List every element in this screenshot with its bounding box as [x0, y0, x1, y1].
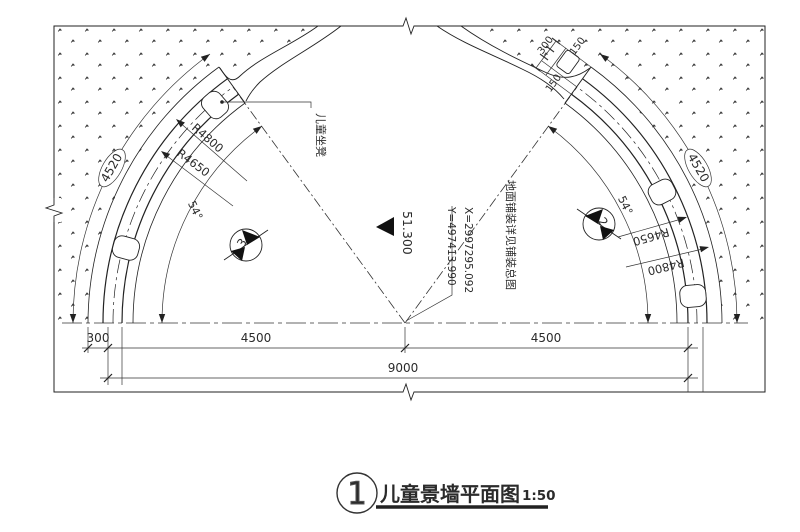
bench-label: 儿童坐凳: [314, 113, 328, 157]
drawing-title: 儿童景墙平面图: [379, 482, 520, 506]
bench-callout: 儿童坐凳: [220, 100, 328, 157]
angle-left-label: 54°: [185, 199, 205, 222]
paving-note: 地面铺装详见铺装总图: [504, 180, 518, 290]
radius-right-inner-label: R4650: [631, 225, 671, 249]
detail-number: 1: [347, 476, 367, 512]
elevation-value: 51.300: [400, 211, 415, 255]
arrowhead: [159, 314, 165, 323]
bench-leader-line: [222, 102, 311, 108]
border-break-mask-top: [396, 17, 418, 34]
dim-4500-left: 4500: [241, 331, 272, 345]
coordinate-callout: X=2997295.092 Y=497413.990: [406, 206, 474, 321]
bench-right-lower: [679, 284, 707, 308]
arrowhead: [645, 314, 651, 323]
radius-right-outer-label: R4800: [646, 256, 686, 279]
linear-dimension-labels: 300 4500 4500 9000: [87, 331, 562, 375]
elevation-marker: 51.300: [376, 211, 415, 255]
stipple-left-region: [54, 26, 318, 323]
section-symbol-left: 3: [224, 229, 268, 261]
coordinate-x-value: X=2997295.092: [462, 207, 474, 293]
linear-dimensions: [82, 327, 703, 392]
arrowhead: [699, 244, 709, 252]
angle-right-label: 54°: [615, 194, 635, 217]
coordinate-y-value: Y=497413.990: [445, 206, 457, 286]
section-symbol-right: 2: [577, 208, 621, 240]
dim-4500-right: 4500: [531, 331, 562, 345]
plan-drawing-canvas: 4520 4520 54° 54° R4800 R4650 R4650 R480…: [0, 0, 800, 532]
drawing-scale: 1:50: [522, 488, 556, 504]
title-block: 1 儿童景墙平面图 1:50: [337, 473, 556, 513]
elevation-triangle-icon: [376, 217, 394, 236]
arrowhead: [253, 123, 264, 133]
stipple-hatch-regions: [54, 26, 765, 323]
radius-left-inner-label: R4650: [174, 146, 212, 180]
arrowhead: [677, 214, 688, 223]
centerlines: [62, 87, 748, 323]
right-radius-ray: [405, 87, 577, 323]
dim-300: 300: [87, 331, 110, 345]
cad-plan-sheet: 4520 4520 54° 54° R4800 R4650 R4650 R480…: [0, 0, 800, 532]
bench-left-upper: [198, 88, 232, 122]
arrowhead: [546, 123, 557, 133]
dim-9000: 9000: [388, 361, 419, 375]
